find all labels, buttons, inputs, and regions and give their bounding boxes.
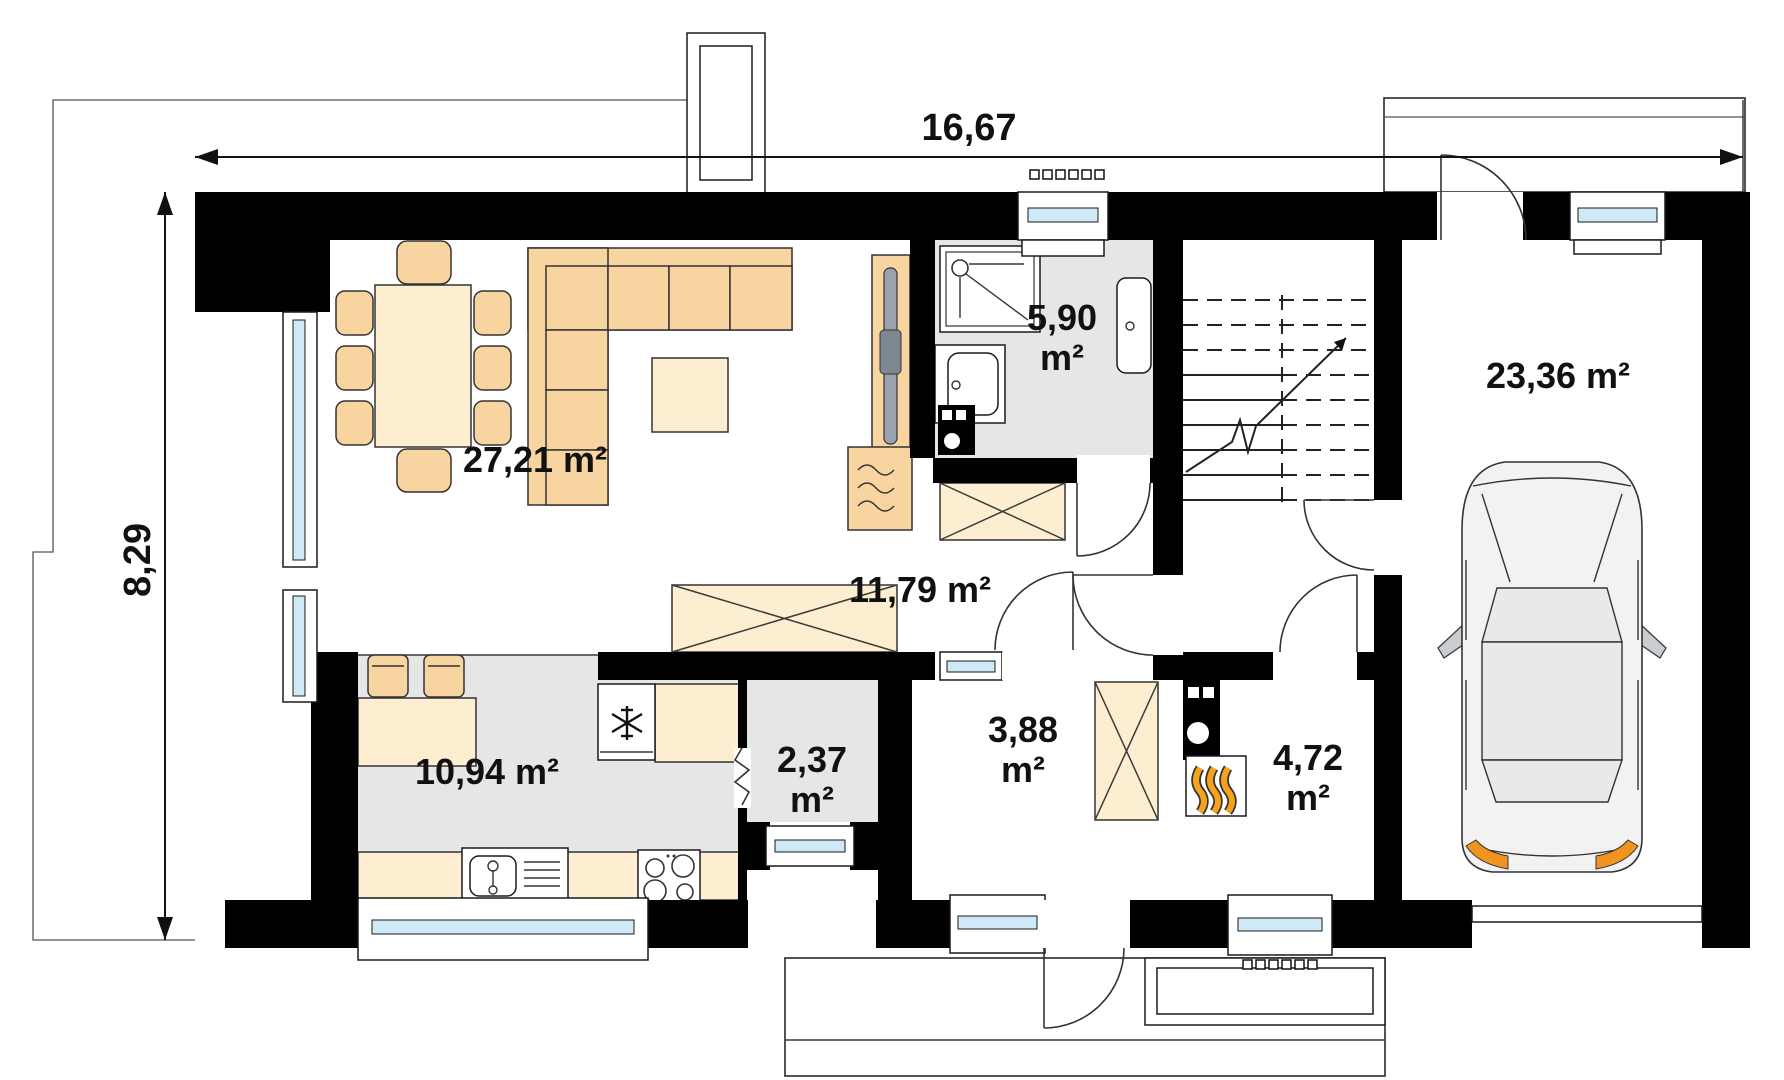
boiler-room-door <box>1273 575 1357 680</box>
shower-icon <box>940 246 1040 332</box>
furnace <box>1186 756 1246 816</box>
hall-wardrobe-a <box>940 483 1065 540</box>
tv-cabinet <box>872 255 910 451</box>
bathroom-area-unit: m² <box>1040 337 1084 378</box>
bathroom-door <box>1077 455 1150 556</box>
pantry-area-value: 2,37 <box>777 739 847 780</box>
corridor-garage-door <box>1304 500 1402 575</box>
car-top-view <box>1438 462 1666 872</box>
flame-icon <box>1196 768 1232 812</box>
boiler-area-unit: m² <box>1286 777 1330 818</box>
kitchen-window-west <box>283 590 317 702</box>
car-roof <box>1482 642 1622 760</box>
kitchen-counter-top <box>598 684 740 762</box>
bathroom-area-value: 5,90 <box>1027 297 1097 338</box>
bathroom-radiator <box>1117 278 1151 373</box>
living-window-west <box>283 312 317 567</box>
height-dimension-label: 8,29 <box>117 523 159 597</box>
pantry-area-unit: m² <box>790 779 834 820</box>
staircase <box>1183 295 1374 510</box>
living-room-area-label: 27,21 m² <box>463 439 607 480</box>
fireplace <box>848 447 912 530</box>
kitchen-area-label: 10,94 m² <box>415 751 559 792</box>
pantry-window-bottom <box>766 826 854 866</box>
windshield <box>1482 588 1622 642</box>
floor-plan-drawing: 16,67 8,29 27,21 m² 5,90 m² 11,79 m² 10,… <box>0 0 1784 1080</box>
dimension-left: 8,29 <box>117 192 173 940</box>
hall-vestibule-door <box>995 572 1075 680</box>
vestibule-area-value: 3,88 <box>988 709 1058 750</box>
bathroom-window-top <box>1018 170 1108 256</box>
vestibule-window-bottom <box>950 895 1045 953</box>
vent-grille-icon <box>1030 170 1104 179</box>
entry-canopy <box>1384 98 1745 192</box>
vestibule-area-unit: m² <box>1001 749 1045 790</box>
width-dimension-label: 16,67 <box>921 107 1016 149</box>
hall-vestibule-interior-window <box>940 652 1002 680</box>
floor-finishes <box>358 240 1153 900</box>
sink-icon <box>462 848 568 904</box>
rear-window <box>1482 760 1622 802</box>
kitchen-counter-bottom <box>358 848 740 904</box>
kitchen-window-bottom <box>358 898 648 960</box>
hall-corridor-door <box>1073 575 1183 655</box>
pantry-opening-break <box>734 748 751 808</box>
garage-window-top <box>1570 192 1665 254</box>
hob-icon <box>638 850 700 904</box>
garage-area-label: 23,36 m² <box>1486 355 1630 396</box>
stairs-arrow-icon <box>1186 338 1346 472</box>
dining-table <box>375 285 471 447</box>
garage-gate <box>1472 906 1702 922</box>
boiler-area-value: 4,72 <box>1273 737 1343 778</box>
floor-plan-page: 16,67 8,29 27,21 m² 5,90 m² 11,79 m² 10,… <box>0 0 1784 1080</box>
hall-area-label: 11,79 m² <box>849 569 991 610</box>
vestibule-wardrobe <box>1095 682 1158 820</box>
coffee-table <box>652 358 728 432</box>
